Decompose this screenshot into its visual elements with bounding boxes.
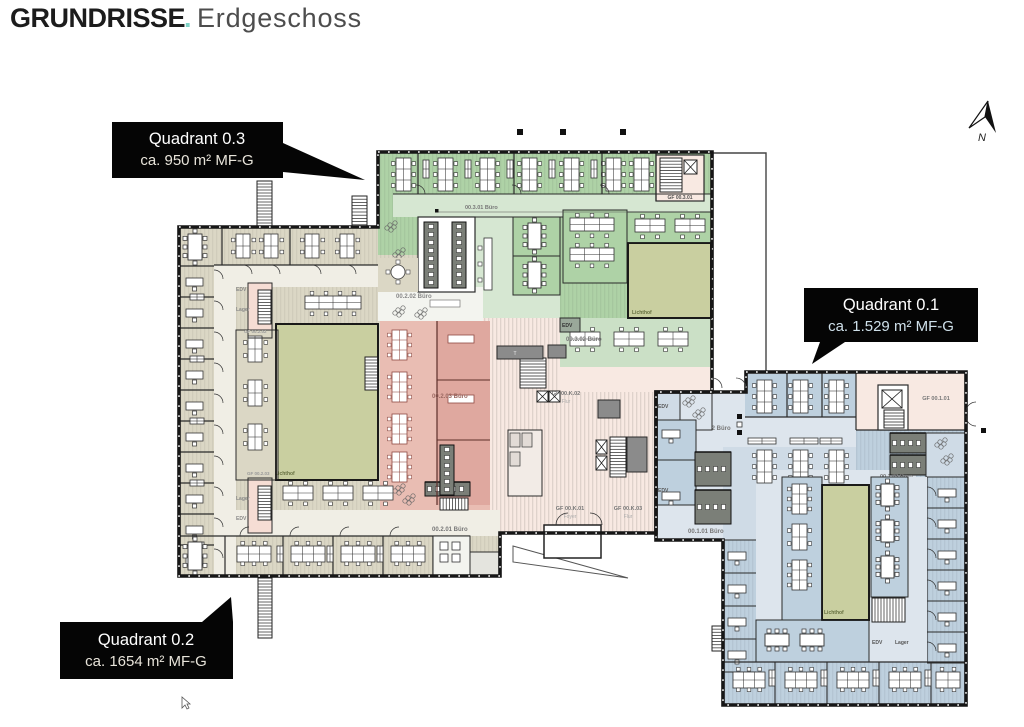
svg-text:Lager: Lager: [236, 496, 250, 502]
svg-text:GF 00.K.02: GF 00.K.02: [552, 391, 580, 397]
svg-text:00.1.01 Büro: 00.1.01 Büro: [688, 529, 724, 535]
svg-text:GF 00.1.01: GF 00.1.01: [922, 396, 950, 402]
svg-text:Lager: Lager: [236, 307, 250, 313]
svg-text:N: N: [978, 132, 986, 144]
svg-text:GF 00.2.03: GF 00.2.03: [247, 471, 270, 476]
svg-text:00.2.01 Büro: 00.2.01 Büro: [432, 527, 468, 533]
svg-text:EDV: EDV: [658, 488, 669, 494]
svg-text:00.3.02 Büro: 00.3.02 Büro: [566, 337, 602, 343]
svg-text:EDV: EDV: [562, 323, 573, 329]
svg-text:Lichthof: Lichthof: [824, 610, 844, 616]
svg-text:GF 00.2.02: GF 00.2.02: [244, 329, 267, 334]
svg-text:GF 00.K.01: GF 00.K.01: [556, 506, 584, 512]
svg-text:Erdgeschoss: Erdgeschoss: [197, 3, 362, 33]
svg-text:GF 00.K.03: GF 00.K.03: [614, 506, 642, 512]
svg-text:Quadrant 0.3: Quadrant 0.3: [149, 130, 245, 148]
svg-text:Quadrant 0.2: Quadrant 0.2: [98, 631, 194, 649]
svg-text:Flur: Flur: [624, 514, 633, 520]
svg-text:Quadrant 0.1: Quadrant 0.1: [843, 296, 939, 314]
svg-text:Flur: Flur: [562, 399, 571, 405]
svg-text:00.2.02 Büro: 00.2.02 Büro: [396, 294, 432, 300]
svg-text:ca. 1.529 m² MF-G: ca. 1.529 m² MF-G: [828, 318, 954, 335]
svg-text:.: .: [184, 3, 192, 33]
svg-text:T: T: [513, 351, 516, 357]
svg-text:GF 00.3.01: GF 00.3.01: [667, 195, 692, 201]
svg-text:EDV: EDV: [236, 287, 247, 293]
svg-text:EDV: EDV: [872, 640, 883, 646]
svg-text:ca. 1654 m² MF-G: ca. 1654 m² MF-G: [85, 653, 207, 670]
svg-text:ca. 950 m² MF-G: ca. 950 m² MF-G: [140, 152, 253, 169]
svg-text:00.2.03 Büro: 00.2.03 Büro: [432, 394, 468, 400]
svg-text:EDV: EDV: [236, 516, 247, 522]
svg-text:Lichthof: Lichthof: [275, 471, 295, 477]
svg-text:GRUNDRISSE: GRUNDRISSE: [10, 3, 185, 33]
svg-text:00.3.01 Büro: 00.3.01 Büro: [465, 205, 498, 211]
svg-text:Lager: Lager: [895, 640, 909, 646]
svg-text:Foyer: Foyer: [564, 514, 577, 520]
svg-text:EDV: EDV: [658, 404, 669, 410]
svg-text:Lichthof: Lichthof: [632, 310, 652, 316]
